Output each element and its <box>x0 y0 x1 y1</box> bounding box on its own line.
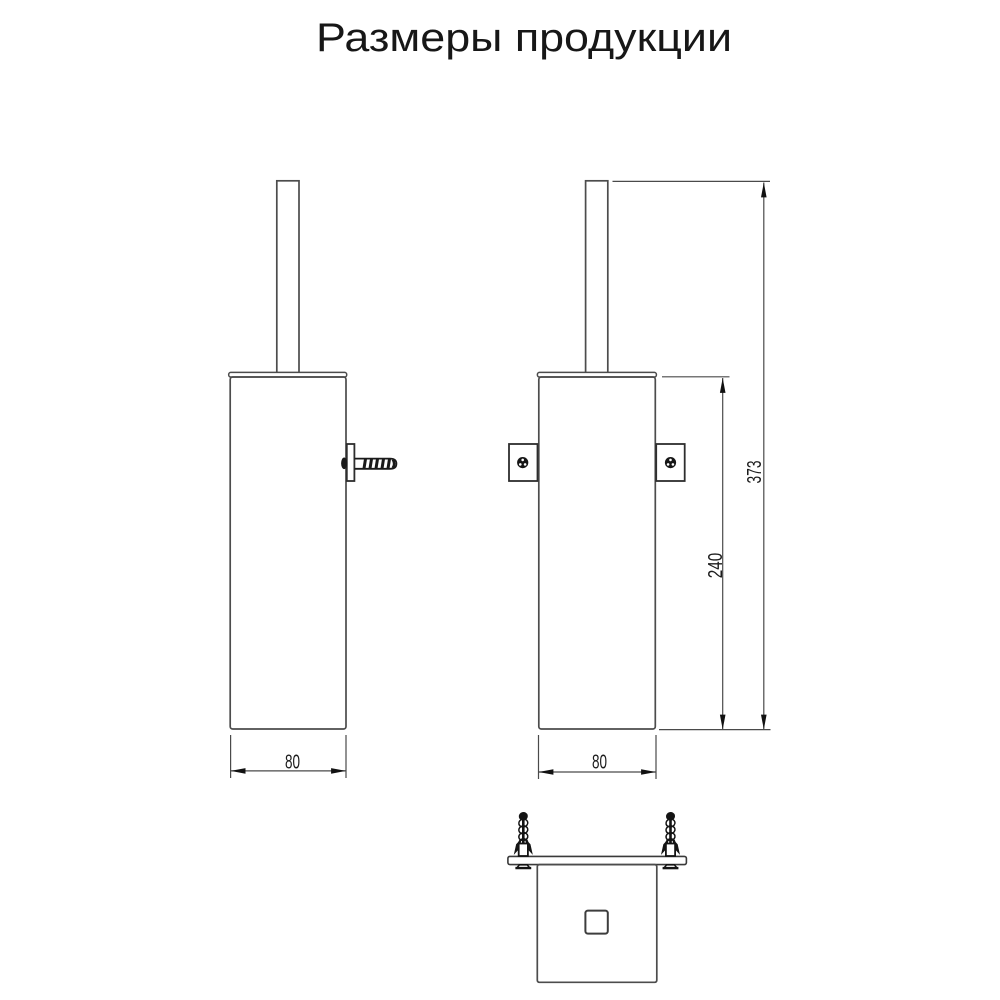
svg-text:240: 240 <box>705 553 727 579</box>
svg-text:Размеры продукции: Размеры продукции <box>316 16 732 60</box>
svg-text:80: 80 <box>285 751 300 774</box>
svg-text:373: 373 <box>744 461 766 484</box>
svg-text:80: 80 <box>592 751 607 774</box>
